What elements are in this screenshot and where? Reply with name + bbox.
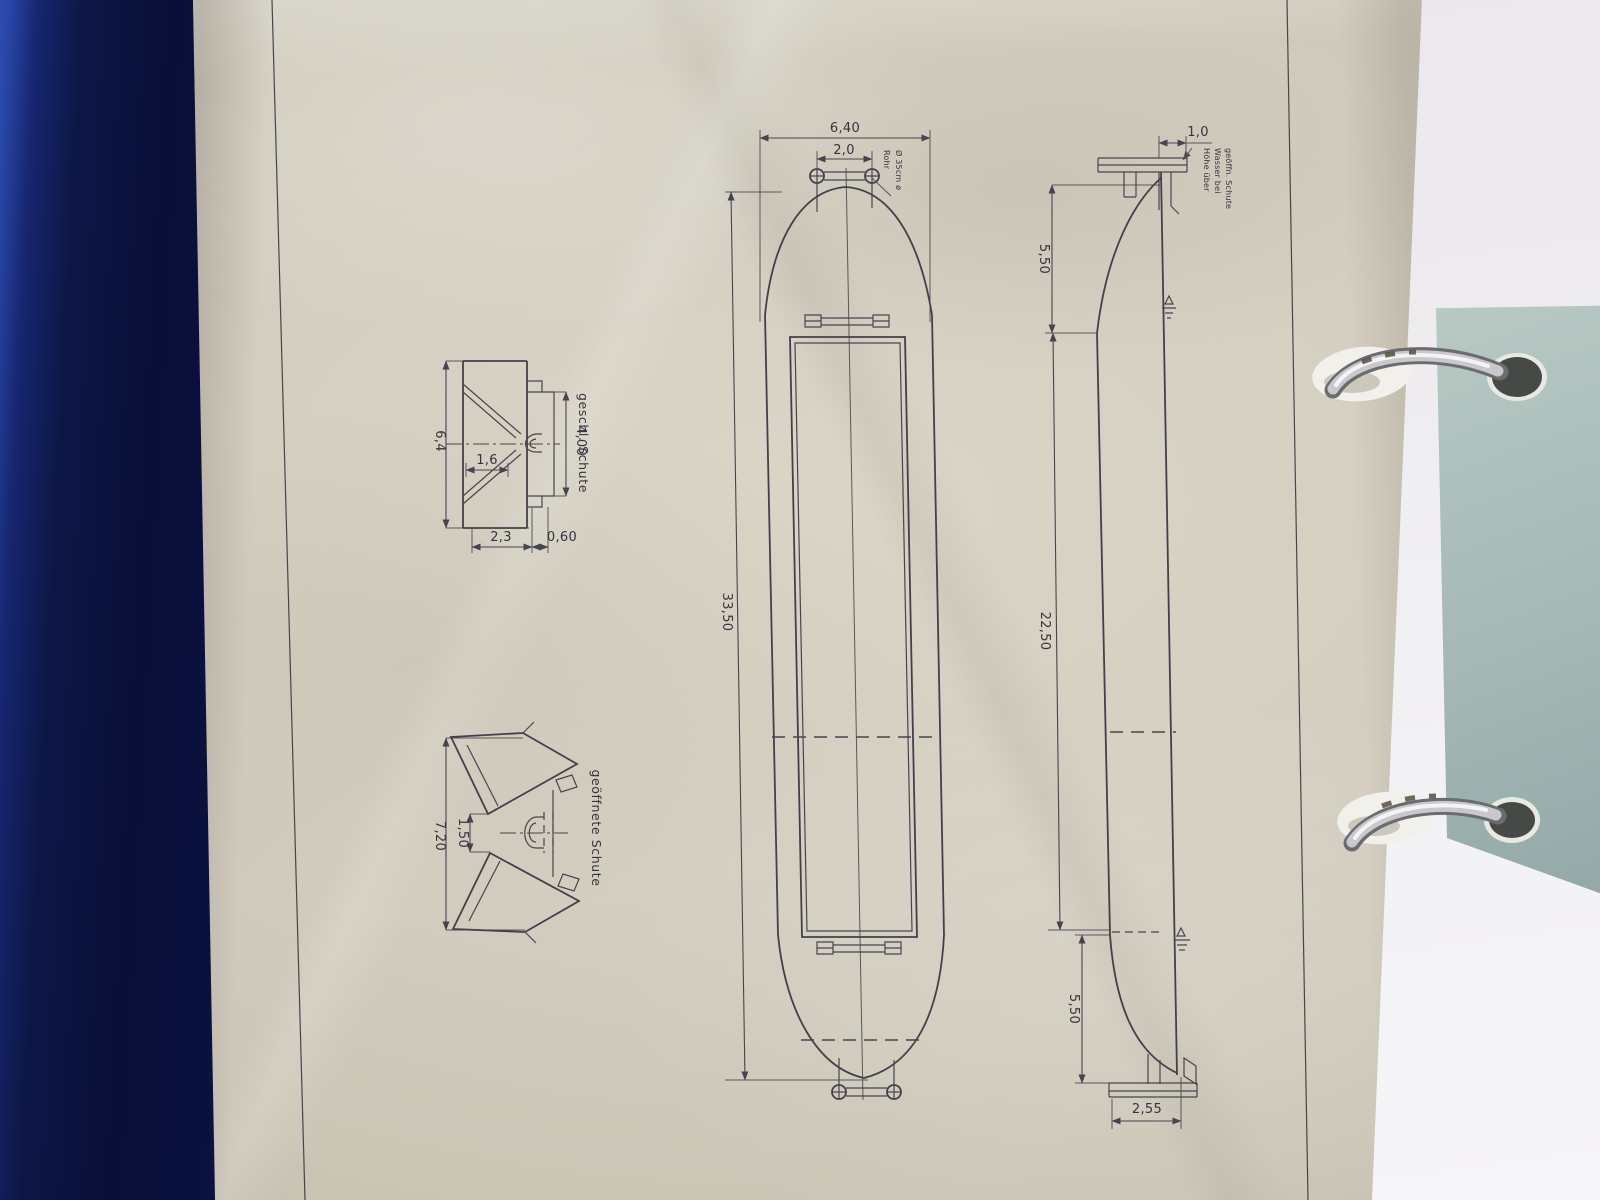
binder-ring-bottom [1335,787,1540,849]
binder-ring-top [1309,342,1547,406]
binder-hardware [0,0,1600,1200]
photo-stage: 6,40 2,0 33,50 Rohr Ø 35cm ø [0,0,1600,1200]
